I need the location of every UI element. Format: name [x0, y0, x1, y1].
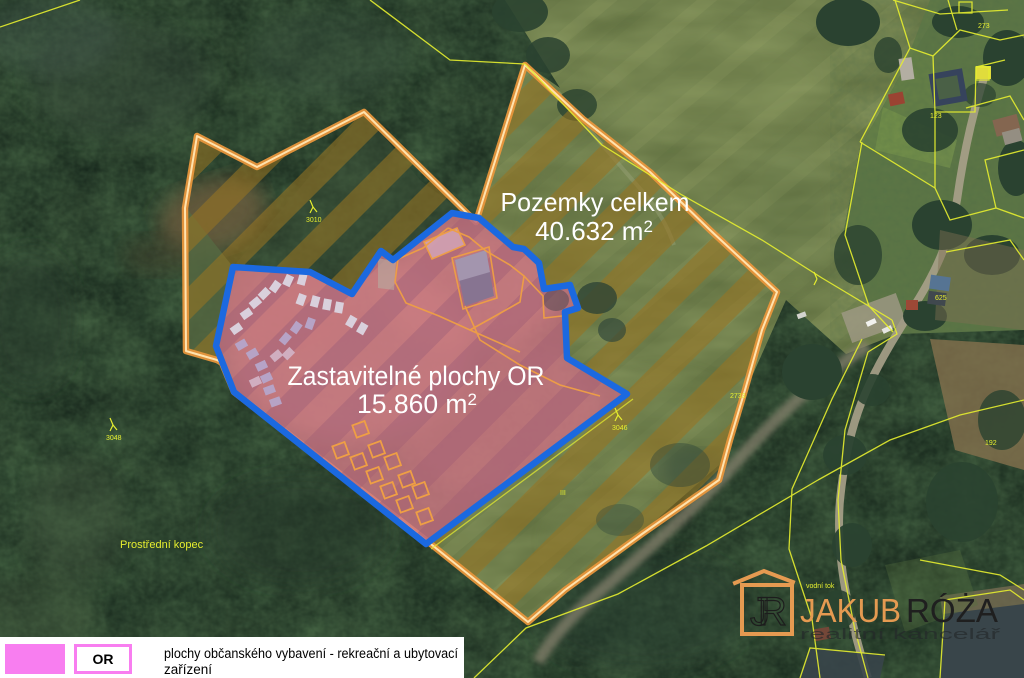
svg-text:zařízení: zařízení	[164, 662, 212, 677]
svg-text:123: 123	[930, 113, 942, 120]
svg-text:RÓŻA: RÓŻA	[906, 592, 998, 629]
svg-text:III: III	[560, 490, 566, 497]
svg-text:JAKUB: JAKUB	[800, 592, 901, 629]
svg-text:Prostřední kopec: Prostřední kopec	[120, 539, 204, 551]
svg-text:3046: 3046	[612, 425, 628, 432]
svg-text:625: 625	[935, 295, 947, 302]
svg-text:Pozemky celkem: Pozemky celkem	[501, 187, 690, 217]
svg-text:3048: 3048	[106, 435, 122, 442]
svg-text:vodní tok: vodní tok	[806, 583, 835, 590]
svg-text:40.632 m2: 40.632 m2	[535, 216, 653, 246]
svg-text:273: 273	[978, 23, 990, 30]
svg-text:R: R	[758, 590, 787, 634]
svg-text:Zastavitelné plochy OR: Zastavitelné plochy OR	[288, 361, 545, 391]
svg-text:15.860 m2: 15.860 m2	[357, 389, 477, 419]
svg-text:3010: 3010	[306, 217, 322, 224]
svg-text:2733: 2733	[730, 393, 746, 400]
svg-text:OR: OR	[93, 651, 114, 667]
svg-text:realitní kancelář: realitní kancelář	[800, 626, 1002, 643]
svg-text:192: 192	[985, 440, 997, 447]
svg-text:plochy občanského vybavení - r: plochy občanského vybavení - rekreační a…	[164, 646, 458, 661]
